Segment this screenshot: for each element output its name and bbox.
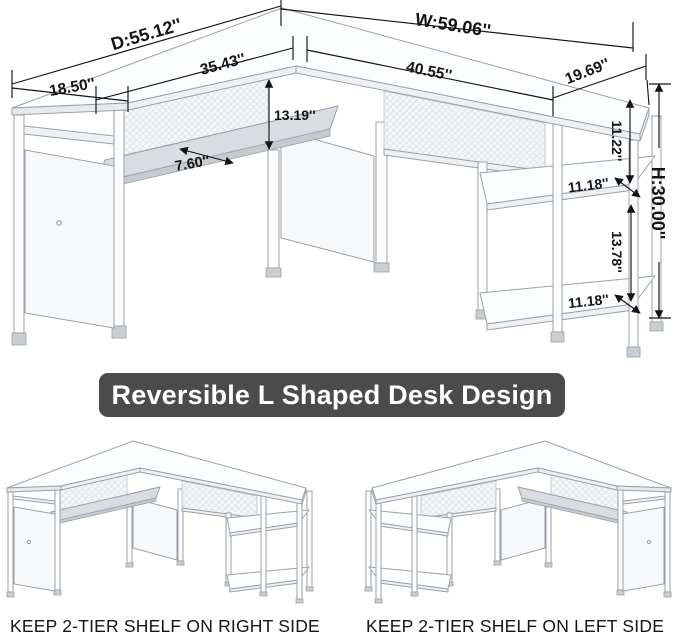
side-cabinet: [25, 150, 114, 328]
variant-caption-left: KEEP 2-TIER SHELF ON RIGHT SIDE: [10, 616, 320, 637]
dimension-label-right-depth: 19.69'': [563, 56, 612, 88]
dimension-label-overall-width: W:59.06'': [414, 9, 492, 41]
main-desk-diagram: D:55.12'' W:59.06'' 35.43'' 40.55'' 18.5…: [0, 0, 679, 372]
product-dimension-sheet: D:55.12'' W:59.06'' 35.43'' 40.55'' 18.5…: [0, 0, 679, 639]
variant-shelf-right-image: [1, 437, 323, 605]
title-banner: Reversible L Shaped Desk Design: [99, 373, 565, 417]
dimension-label-upper-shelf-clearance: 11.22'': [609, 121, 625, 162]
corner-support-panel: [281, 130, 374, 262]
variant-caption-right: KEEP 2-TIER SHELF ON LEFT SIDE: [366, 616, 664, 637]
title-banner-label: Reversible L Shaped Desk Design: [112, 380, 553, 411]
dimension-label-overall-height: H:30.00'': [648, 167, 668, 240]
dimension-label-lower-shelf-clearance: 13.78'': [609, 231, 625, 273]
desk-illustration: [12, 8, 663, 357]
dimension-label-tray-height: 13.19'': [274, 107, 316, 123]
corner-leg: [268, 150, 279, 268]
variant-shelf-left-image: [355, 437, 677, 605]
